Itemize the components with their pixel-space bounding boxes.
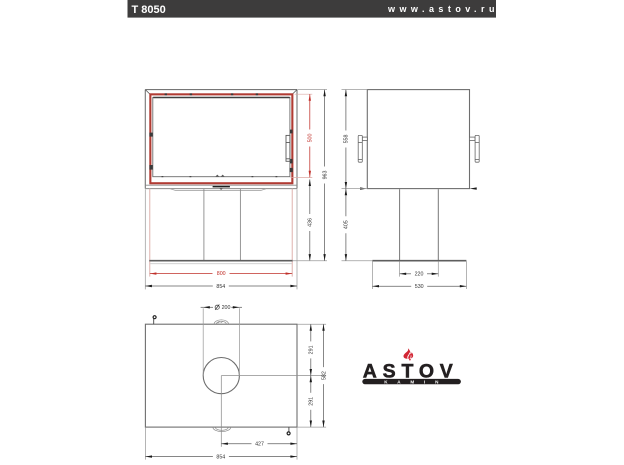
svg-text:KAMIN: KAMIN [384, 379, 448, 384]
svg-text:427: 427 [255, 442, 264, 448]
svg-text:558: 558 [344, 135, 350, 144]
svg-text:800: 800 [217, 271, 226, 277]
svg-text:530: 530 [415, 284, 424, 290]
svg-text:200: 200 [222, 305, 231, 311]
svg-text:www.astov.ru: www.astov.ru [387, 4, 499, 14]
svg-text:220: 220 [415, 272, 424, 278]
svg-text:436: 436 [308, 218, 314, 227]
svg-text:854: 854 [216, 284, 225, 290]
svg-text:854: 854 [216, 455, 225, 461]
svg-text:405: 405 [344, 220, 350, 229]
svg-text:582: 582 [321, 371, 327, 380]
svg-text:T 8050: T 8050 [132, 4, 166, 16]
svg-text:963: 963 [322, 171, 328, 180]
svg-text:291: 291 [309, 397, 315, 406]
svg-text:291: 291 [309, 345, 315, 354]
svg-text:500: 500 [308, 134, 314, 143]
